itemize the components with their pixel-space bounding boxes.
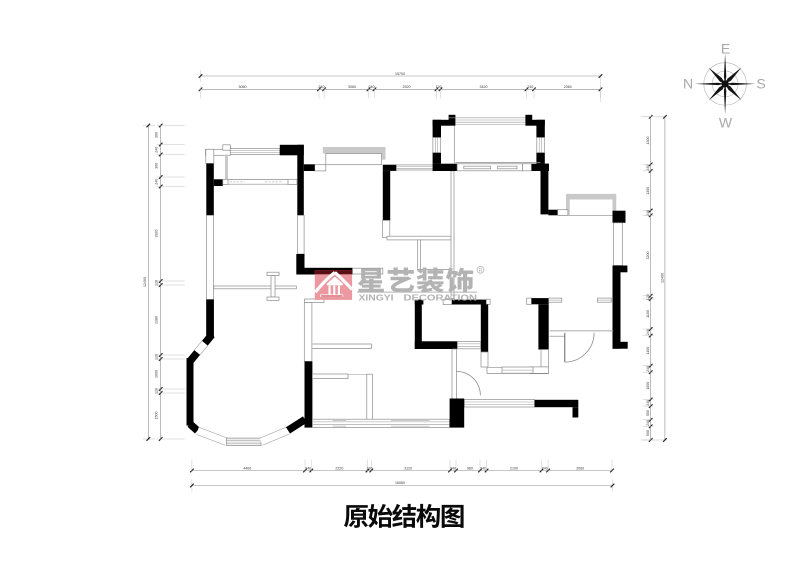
svg-text:240: 240 — [527, 85, 533, 89]
svg-text:120: 120 — [154, 354, 158, 360]
svg-text:1500: 1500 — [154, 412, 158, 420]
svg-text:S: S — [756, 76, 765, 92]
svg-text:1100: 1100 — [646, 310, 650, 318]
svg-text:240: 240 — [305, 466, 311, 470]
svg-text:2220: 2220 — [335, 466, 343, 470]
svg-text:240: 240 — [646, 165, 650, 171]
svg-text:3060: 3060 — [348, 85, 356, 89]
svg-text:2100: 2100 — [510, 466, 518, 470]
svg-text:120: 120 — [436, 85, 442, 89]
svg-text:2280: 2280 — [154, 316, 158, 324]
svg-text:240: 240 — [369, 85, 375, 89]
svg-text:12400: 12400 — [143, 277, 147, 287]
svg-text:240: 240 — [542, 466, 548, 470]
svg-text:360: 360 — [154, 132, 158, 138]
svg-text:120: 120 — [154, 388, 158, 394]
svg-text:360: 360 — [154, 163, 158, 169]
svg-text:240: 240 — [154, 147, 158, 153]
svg-text:3200: 3200 — [646, 252, 650, 260]
svg-text:1000: 1000 — [154, 370, 158, 378]
svg-text:240: 240 — [154, 179, 158, 185]
svg-text:DECORATION: DECORATION — [404, 293, 478, 302]
svg-text:960: 960 — [467, 466, 473, 470]
svg-text:240: 240 — [450, 466, 456, 470]
svg-text:XINGYI: XINGYI — [359, 293, 394, 302]
svg-text:W: W — [719, 115, 733, 131]
svg-text:3060: 3060 — [239, 85, 247, 89]
svg-text:240: 240 — [646, 400, 650, 406]
svg-text:N: N — [683, 76, 693, 92]
svg-text:R: R — [479, 268, 483, 274]
svg-text:4400: 4400 — [243, 466, 251, 470]
svg-text:240: 240 — [480, 466, 486, 470]
svg-text:E: E — [721, 41, 730, 57]
svg-text:15700: 15700 — [395, 72, 405, 76]
svg-text:240: 240 — [646, 210, 650, 216]
svg-text:2060: 2060 — [576, 466, 584, 470]
svg-text:1300: 1300 — [646, 187, 650, 195]
svg-text:240: 240 — [646, 366, 650, 372]
svg-text:3420: 3420 — [480, 85, 488, 89]
svg-text:120: 120 — [154, 280, 158, 286]
svg-text:240: 240 — [319, 85, 325, 89]
svg-text:3120: 3120 — [404, 466, 412, 470]
svg-text:12400: 12400 — [661, 273, 665, 283]
svg-text:1300: 1300 — [646, 137, 650, 145]
svg-text:240: 240 — [646, 329, 650, 335]
svg-text:500: 500 — [646, 410, 650, 416]
svg-text:3920: 3920 — [154, 230, 158, 238]
svg-text:16060: 16060 — [395, 481, 405, 485]
svg-text:1100: 1100 — [646, 347, 650, 355]
svg-text:120: 120 — [646, 294, 650, 300]
svg-text:120: 120 — [366, 466, 372, 470]
svg-text:2060: 2060 — [564, 85, 572, 89]
svg-text:500: 500 — [646, 430, 650, 436]
svg-text:240: 240 — [646, 420, 650, 426]
svg-text:1000: 1000 — [646, 382, 650, 390]
svg-text:2520: 2520 — [403, 85, 411, 89]
